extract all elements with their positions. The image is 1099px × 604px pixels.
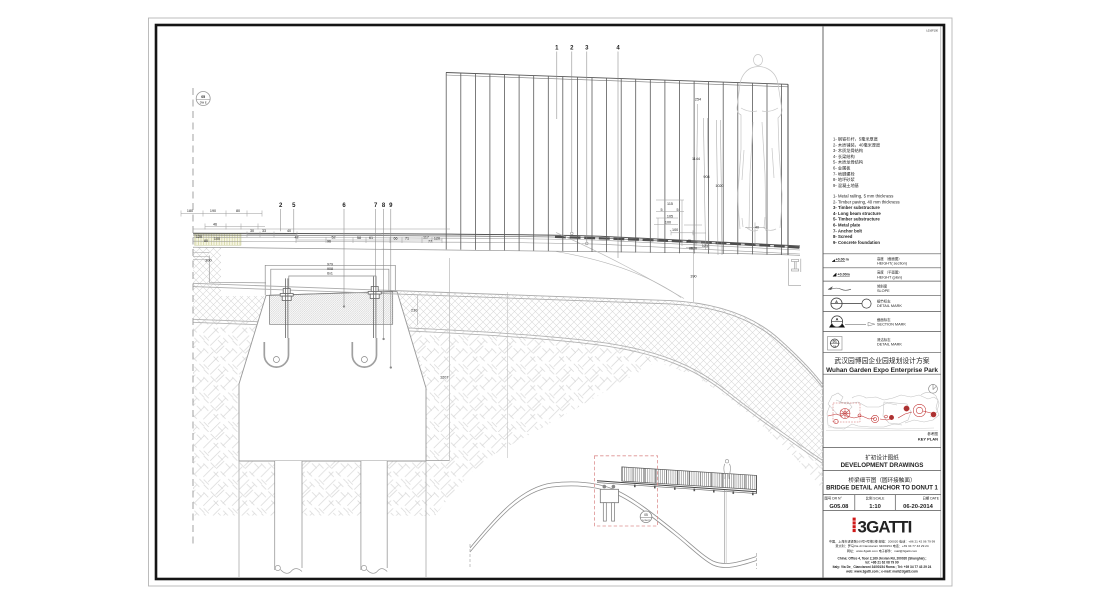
- svg-text:D4: D4: [833, 344, 837, 348]
- svg-text:7- Anchor bolt: 7- Anchor bolt: [833, 228, 863, 233]
- svg-text:DW E: DW E: [200, 101, 207, 105]
- svg-text:9- 混凝土地基: 9- 混凝土地基: [833, 182, 860, 189]
- svg-text:1207: 1207: [440, 376, 448, 380]
- svg-text:96: 96: [327, 240, 331, 244]
- svg-text:9- Concrete foundation: 9- Concrete foundation: [833, 240, 880, 245]
- svg-text:G05.08: G05.08: [829, 504, 849, 510]
- svg-text:HEIGHT (plan): HEIGHT (plan): [877, 275, 903, 279]
- svg-text:D1: D1: [833, 339, 837, 343]
- svg-text:120: 120: [434, 237, 440, 241]
- svg-text:DONUT: DONUT: [642, 520, 650, 522]
- svg-text:1144: 1144: [692, 157, 700, 161]
- svg-text:tel: +86 21 62 08 79 99: tel: +86 21 62 08 79 99: [865, 561, 898, 565]
- svg-text:121: 121: [702, 244, 708, 248]
- svg-text:33: 33: [262, 229, 266, 233]
- svg-text:61: 61: [369, 236, 373, 240]
- svg-text:100: 100: [665, 221, 671, 225]
- svg-text:3GATTI: 3GATTI: [858, 517, 912, 536]
- svg-text:6x1: 6x1: [327, 272, 333, 276]
- svg-text:77: 77: [428, 240, 432, 244]
- svg-text:高度 （平面图）: 高度 （平面图）: [877, 270, 902, 275]
- svg-text:190: 190: [210, 209, 216, 213]
- svg-text:908: 908: [703, 175, 709, 179]
- svg-text:40: 40: [287, 229, 291, 233]
- svg-text:105: 105: [667, 215, 673, 219]
- svg-text:254: 254: [695, 98, 701, 102]
- svg-text:1:10: 1:10: [869, 504, 881, 510]
- svg-text:120: 120: [691, 247, 697, 251]
- svg-text:+0.00 m: +0.00 m: [836, 258, 849, 262]
- svg-text:2- Timber paving, 40 mm thickn: 2- Timber paving, 40 mm thickness: [833, 199, 900, 204]
- svg-text:42: 42: [294, 236, 298, 240]
- svg-text:意大利：罗马Via di Cianciaroni 34/00: 意大利：罗马Via di Cianciaroni 34/00154 电话：+39…: [835, 543, 929, 548]
- svg-text:5: 5: [660, 208, 662, 212]
- svg-text:40: 40: [755, 226, 759, 230]
- svg-text:桥梁细节图（圆环接触面）: 桥梁细节图（圆环接触面）: [848, 476, 915, 484]
- svg-text:Wuhan Garden Expo Enterprise P: Wuhan Garden Expo Enterprise Park: [826, 367, 938, 374]
- svg-text:DETAIL MARK: DETAIL MARK: [877, 304, 902, 308]
- svg-text:SLOPE: SLOPE: [877, 289, 890, 293]
- svg-text:100: 100: [214, 237, 220, 241]
- svg-text:5- Timber substructure: 5- Timber substructure: [833, 217, 880, 222]
- svg-text:115: 115: [667, 202, 673, 206]
- svg-text:58: 58: [357, 236, 361, 240]
- svg-text:6- Metal plate: 6- Metal plate: [833, 223, 861, 228]
- svg-text:DETAIL MARK: DETAIL MARK: [877, 343, 902, 347]
- svg-text:71: 71: [405, 237, 409, 241]
- svg-text:46: 46: [213, 223, 217, 227]
- svg-text:80: 80: [236, 209, 240, 213]
- svg-text:细节标志: 细节标志: [877, 298, 891, 303]
- svg-text:截面标志: 截面标志: [877, 317, 891, 322]
- svg-text:DEVELOPMENT DRAWINGS: DEVELOPMENT DRAWINGS: [841, 462, 924, 469]
- svg-text:05: 05: [644, 513, 648, 517]
- svg-text:05: 05: [201, 95, 205, 99]
- svg-text:扩初设计图纸: 扩初设计图纸: [865, 453, 899, 461]
- svg-text:230: 230: [411, 309, 417, 313]
- svg-text:SECTION MARK: SECTION MARK: [877, 323, 906, 327]
- svg-text:A: A: [836, 318, 839, 322]
- svg-text:06-20-2014: 06-20-2014: [903, 504, 933, 510]
- svg-text:45: 45: [687, 239, 691, 243]
- svg-text:比例 SCALE: 比例 SCALE: [866, 495, 886, 500]
- svg-text:参考图: 参考图: [927, 431, 938, 436]
- svg-text:908: 908: [327, 267, 333, 271]
- svg-text:A: A: [835, 300, 838, 304]
- svg-text:网址：www.3gatti.com 电子邮件：mail@3g: 网址：www.3gatti.com 电子邮件：mail@3gatti.com: [847, 548, 918, 553]
- svg-text:80: 80: [204, 239, 208, 243]
- svg-text:1- Metal railing, 5 mm thickne: 1- Metal railing, 5 mm thickness: [833, 194, 893, 199]
- svg-text:8- Screed: 8- Screed: [833, 234, 853, 239]
- svg-text:52: 52: [331, 236, 335, 240]
- svg-text:倾斜度: 倾斜度: [877, 283, 888, 288]
- svg-text:KEY PLAN: KEY PLAN: [918, 436, 938, 441]
- svg-text:1020: 1020: [715, 184, 723, 188]
- svg-text:120: 120: [196, 235, 202, 239]
- svg-text:3- Timber substructure: 3- Timber substructure: [833, 205, 880, 210]
- svg-text:66: 66: [393, 237, 397, 241]
- svg-text:Italy: Via De_ Cianciaroni 34/: Italy: Via De_ Cianciaroni 34/00154 Roma…: [833, 565, 932, 569]
- svg-text:30: 30: [250, 229, 254, 233]
- svg-text:L016F100: L016F100: [926, 28, 938, 32]
- svg-text:- 100: - 100: [670, 228, 678, 232]
- svg-text:390: 390: [690, 275, 696, 279]
- svg-text:HEIGHT( section): HEIGHT( section): [877, 262, 908, 266]
- svg-text:180: 180: [187, 209, 193, 213]
- svg-text:图号 DR N°: 图号 DR N°: [825, 495, 843, 500]
- svg-text:web: www.3gatti.com ; e-mail:: web: www.3gatti.com ; e-mail: mail@3gatt…: [845, 569, 918, 573]
- svg-text:+0.00m: +0.00m: [838, 273, 850, 277]
- svg-text:清洁标志: 清洁标志: [877, 337, 891, 342]
- svg-text:BRIDGE DETAIL ANCHOR TO DONUT: BRIDGE DETAIL ANCHOR TO DONUT 1: [826, 486, 938, 492]
- svg-text:高度 （截面图）: 高度 （截面图）: [877, 256, 902, 261]
- svg-text:300: 300: [205, 258, 212, 263]
- svg-text:日期 DATE: 日期 DATE: [922, 495, 939, 500]
- svg-text:中国，上海市进贤路169号4号楼2楼 邮编：200020 电: 中国，上海市进贤路169号4号楼2楼 邮编：200020 电话：+86 21 4…: [829, 539, 935, 544]
- svg-text:武汉园博园企业园规划设计方案: 武汉园博园企业园规划设计方案: [834, 356, 929, 365]
- svg-text:5: 5: [676, 208, 678, 212]
- svg-text:4- Long beam structure: 4- Long beam structure: [833, 211, 881, 216]
